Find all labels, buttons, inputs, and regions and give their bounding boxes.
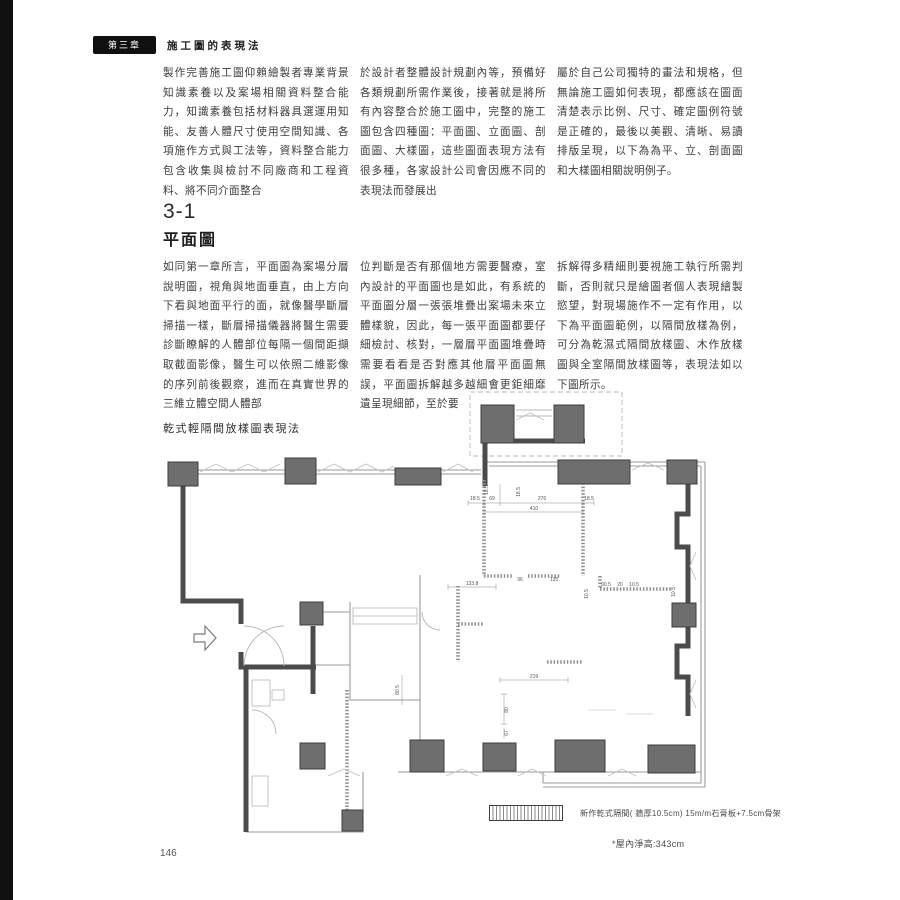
legend-text: 新作乾式隔間( 牆厚10.5cm) 15m/m石膏板+7.5cm骨架 — [580, 808, 781, 819]
structural-walls — [183, 441, 688, 832]
column — [300, 743, 325, 769]
door-swing-arcs — [244, 612, 440, 734]
dimension-labels: 18.5 69 276 18.5 410 18.5 96 135 133.8 2… — [395, 485, 677, 736]
dim-label: 80.5 — [395, 685, 401, 695]
section-heading: 3-1 平面圖 — [163, 201, 217, 250]
ceiling-height-note: *屋內淨高:343cm — [612, 837, 684, 850]
intro-column-2: 於設計者整體設計規劃內等，預備好各類規劃所需作業後，接著就是將所有內容整合於施工… — [360, 64, 546, 201]
intro-column-1: 製作完善施工圖仰賴繪製者專業背景知識素養以及案場相關資料整合能力，知識素養包括材… — [163, 64, 349, 201]
dimension-lines — [402, 484, 594, 738]
page-number: 146 — [160, 848, 177, 859]
column — [395, 468, 441, 485]
dim-label: 219 — [530, 674, 539, 680]
dim-label: 90.5 — [601, 582, 611, 588]
column — [342, 810, 363, 831]
dim-label: 276 — [538, 496, 547, 502]
chapter-badge: 第三章 — [93, 36, 156, 54]
dim-label: 18.5 — [484, 485, 490, 495]
dim-label: 69 — [489, 496, 495, 502]
hatched-wall-swatch — [489, 805, 563, 821]
column — [672, 603, 696, 627]
page-header: 第三章 施工圖的表現法 — [93, 36, 262, 54]
column — [285, 458, 316, 484]
column — [555, 740, 605, 772]
dim-label: 67 — [504, 730, 510, 736]
plan-legend: 新作乾式隔間( 牆厚10.5cm) 15m/m石膏板+7.5cm骨架 — [489, 805, 781, 821]
dim-label: 96 — [517, 577, 523, 583]
column — [410, 740, 444, 772]
dim-label: 18.5 — [470, 496, 480, 502]
dim-label: 10.5 — [629, 582, 639, 588]
column — [667, 460, 697, 484]
dim-label: 18.5 — [584, 496, 594, 502]
column — [481, 405, 514, 443]
column — [554, 405, 584, 443]
column — [483, 743, 516, 771]
column — [300, 602, 323, 625]
entry-arrow-icon — [194, 626, 216, 650]
intro-paragraphs: 製作完善施工圖仰賴繪製者專業背景知識素養以及案場相關資料整合能力，知識素養包括材… — [163, 64, 743, 201]
chapter-title: 施工圖的表現法 — [167, 38, 262, 53]
intro-column-3: 屬於自己公司獨特的畫法和規格，但無論施工圖如何表現，都應該在圖面清楚表示比例、尺… — [557, 64, 743, 201]
column — [558, 460, 630, 484]
dim-label: 410 — [530, 506, 539, 512]
dim-label: 20 — [617, 582, 623, 588]
dim-label: 10.5 — [671, 587, 677, 597]
column — [648, 745, 695, 773]
dim-label: 133.8 — [466, 581, 479, 587]
dim-label: 18.5 — [516, 487, 522, 497]
column — [168, 462, 198, 486]
section-number: 3-1 — [163, 201, 217, 223]
dim-label: 10.5 — [584, 589, 590, 599]
dim-label: 80 — [504, 707, 510, 713]
floor-plan-drawing: 18.5 69 276 18.5 410 18.5 96 135 133.8 2… — [148, 380, 723, 840]
left-page-spine — [0, 0, 13, 900]
dim-label: 135 — [550, 577, 559, 583]
section-title: 平面圖 — [163, 226, 217, 250]
